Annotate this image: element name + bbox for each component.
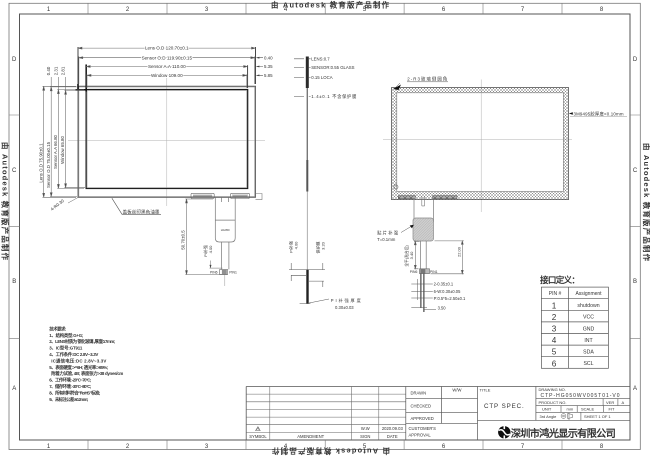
- svg-text:W.W: W.W: [361, 426, 370, 431]
- svg-text:50.70±0.5: 50.70±0.5: [181, 230, 186, 250]
- svg-text:PI补强厚度: PI补强厚度: [331, 297, 362, 304]
- svg-text:A: A: [12, 386, 16, 392]
- svg-text:SCALE: SCALE: [581, 407, 594, 412]
- svg-text:mm: mm: [567, 407, 574, 412]
- svg-text:由 Autodesk 教育版产品制作: 由 Autodesk 教育版产品制作: [271, 447, 390, 456]
- svg-text:Window 65.80: Window 65.80: [60, 136, 65, 164]
- svg-text:D: D: [12, 57, 17, 63]
- svg-text:1: 1: [47, 444, 51, 450]
- svg-text:9、未标注公差:±0.2mm;: 9、未标注公差:±0.2mm;: [49, 396, 89, 403]
- svg-text:2-0.35±0.1: 2-0.35±0.1: [434, 282, 454, 287]
- svg-text:22.00: 22.00: [457, 246, 462, 257]
- svg-text:4、工作条件:DC 2.8V~3.3V: 4、工作条件:DC 2.8V~3.3V: [49, 351, 98, 358]
- svg-text:2.81: 2.81: [61, 66, 66, 75]
- svg-text:Sensor A.A 66.80: Sensor A.A 66.80: [53, 134, 58, 168]
- svg-text:Lens O.D 120.70±0.1: Lens O.D 120.70±0.1: [145, 46, 189, 51]
- svg-text:C: C: [633, 168, 638, 174]
- svg-text:C: C: [12, 168, 17, 174]
- svg-text:Assignment: Assignment: [575, 291, 602, 297]
- svg-text:盖板丝印黑色油墨: 盖板丝印黑色油墨: [123, 208, 160, 215]
- svg-text:3.40: 3.40: [409, 251, 414, 260]
- svg-text:0.15 LOCA: 0.15 LOCA: [311, 75, 332, 80]
- svg-text:3rd Angle: 3rd Angle: [540, 414, 558, 419]
- svg-text:PIN1: PIN1: [229, 270, 237, 274]
- svg-text:贴片补强: 贴片补强: [377, 229, 399, 236]
- svg-text:5.85: 5.85: [264, 73, 273, 78]
- svg-text:3: 3: [205, 444, 209, 450]
- svg-text:由 Autodesk 教育版产品制作: 由 Autodesk 教育版产品制作: [1, 142, 10, 261]
- svg-text:DRAWN: DRAWN: [411, 390, 427, 395]
- svg-text:PIN #: PIN #: [549, 291, 562, 297]
- svg-text:SIGN: SIGN: [360, 434, 370, 439]
- svg-text:SYMBOL: SYMBOL: [249, 434, 267, 439]
- svg-text:CUSTOMER'S: CUSTOMER'S: [409, 426, 437, 431]
- svg-text:B: B: [633, 279, 637, 285]
- svg-text:深圳市鸿光显示有限公司: 深圳市鸿光显示有限公司: [511, 427, 616, 440]
- svg-text:AMENDMENT: AMENDMENT: [297, 434, 324, 439]
- svg-text:5、表面硬度:>=6H; 透光率:>85%;: 5、表面硬度:>=6H; 透光率:>85%;: [49, 364, 109, 371]
- svg-text:SHEET 1 OF 1: SHEET 1 OF 1: [584, 414, 611, 419]
- svg-text:4: 4: [552, 336, 557, 345]
- svg-text:B: B: [12, 279, 16, 285]
- svg-text:7: 7: [521, 7, 525, 13]
- svg-text:LENS:0.7: LENS:0.7: [311, 56, 330, 61]
- svg-text:3: 3: [205, 7, 209, 13]
- svg-text:2: 2: [552, 313, 557, 322]
- svg-text:CTP-HG050WV005T01-V0: CTP-HG050WV005T01-V0: [541, 393, 620, 399]
- svg-text:全平(贴合后): 全平(贴合后): [404, 245, 409, 267]
- svg-text:2020.09.03: 2020.09.03: [382, 426, 404, 431]
- svg-text:附着力试验, 4B; 表面张力>38 dynes/cm: 附着力试验, 4B; 表面张力>38 dynes/cm: [51, 370, 123, 377]
- svg-text:1: 1: [552, 301, 557, 310]
- svg-text:8: 8: [600, 7, 604, 13]
- svg-text:6: 6: [442, 444, 446, 450]
- svg-text:6-W:0.30±0.05: 6-W:0.30±0.05: [434, 289, 461, 294]
- svg-text:2: 2: [126, 7, 130, 13]
- svg-text:1、结构类型:G+G;: 1、结构类型:G+G;: [49, 332, 84, 339]
- svg-text:7: 7: [521, 444, 525, 450]
- svg-text:由 Autodesk 教育版产品制作: 由 Autodesk 教育版产品制作: [271, 0, 390, 9]
- svg-text:0.40: 0.40: [264, 55, 273, 60]
- svg-text:SDA: SDA: [583, 350, 594, 356]
- svg-text:T=0.1mm: T=0.1mm: [377, 237, 396, 242]
- svg-text:1.4±0.1 不含保护膜: 1.4±0.1 不含保护膜: [311, 93, 357, 100]
- svg-text:接口定义：: 接口定义：: [540, 274, 580, 285]
- svg-text:D: D: [633, 57, 638, 63]
- svg-text:8、所有材料符合"RoHS"标准;: 8、所有材料符合"RoHS"标准;: [49, 389, 101, 396]
- svg-text:SENSOR:0.55 GLASS: SENSOR:0.55 GLASS: [311, 65, 354, 70]
- svg-text:8: 8: [600, 444, 604, 450]
- svg-text:2.31: 2.31: [53, 66, 58, 75]
- svg-text:3.50: 3.50: [438, 306, 447, 311]
- svg-text:2、LENS材质为 钢化玻璃 ,厚度0.7mm;: 2、LENS材质为 钢化玻璃 ,厚度0.7mm;: [49, 338, 116, 345]
- svg-text:5.35: 5.35: [264, 64, 273, 69]
- svg-text:HG050: HG050: [221, 228, 230, 232]
- svg-text:P:0.5*5=2.50±0.1: P:0.5*5=2.50±0.1: [434, 296, 466, 301]
- svg-text:3、IC型号:GT911: 3、IC型号:GT911: [49, 345, 83, 352]
- svg-text:0.30±0.03: 0.30±0.03: [335, 305, 354, 310]
- svg-text:0.40: 0.40: [46, 66, 51, 75]
- svg-text:6: 6: [442, 7, 446, 13]
- svg-text:CTP SPEC.: CTP SPEC.: [484, 403, 525, 410]
- svg-text:DRAWING NO.: DRAWING NO.: [539, 387, 566, 392]
- svg-text:Sensor O.D 119.90±0.15: Sensor O.D 119.90±0.15: [142, 55, 193, 60]
- svg-text:Lens O.D 75.90±0.1: Lens O.D 75.90±0.1: [38, 143, 43, 183]
- svg-text:由 Autodesk 教育版产品制作: 由 Autodesk 教育版产品制作: [642, 143, 650, 262]
- svg-text:2: 2: [126, 444, 130, 450]
- svg-text:3: 3: [552, 325, 557, 334]
- svg-text:W/W: W/W: [452, 388, 461, 393]
- svg-text:PIN6: PIN6: [410, 270, 418, 274]
- svg-text:UNIT: UNIT: [542, 407, 552, 412]
- svg-text:GND: GND: [583, 326, 595, 332]
- svg-text:SCL: SCL: [583, 361, 593, 367]
- svg-text:DATE: DATE: [387, 434, 398, 439]
- svg-text:7、储存环境: -30°C~80°C;: 7、储存环境: -30°C~80°C;: [49, 383, 92, 390]
- svg-text:FIT: FIT: [609, 407, 616, 412]
- svg-text:APPROVED: APPROVED: [411, 416, 434, 421]
- svg-text:1: 1: [47, 7, 51, 13]
- svg-text:INT: INT: [584, 338, 593, 344]
- svg-text:4-R0.30: 4-R0.30: [50, 198, 66, 212]
- svg-text:PIN1: PIN1: [430, 270, 438, 274]
- svg-text:IC通信电压:DC 2.8V~3.3V: IC通信电压:DC 2.8V~3.3V: [51, 357, 106, 364]
- svg-text:Sensor O.D 75.00±0.15: Sensor O.D 75.00±0.15: [46, 141, 51, 188]
- svg-text:3.20: 3.20: [321, 241, 326, 250]
- svg-text:PRODUCT NO.: PRODUCT NO.: [539, 400, 567, 405]
- svg-text:技术要求:: 技术要求:: [49, 325, 67, 332]
- svg-text:5: 5: [552, 348, 557, 357]
- svg-text:TITLE: TITLE: [480, 387, 491, 392]
- svg-text:4.00: 4.00: [294, 241, 299, 250]
- svg-text:shutdown: shutdown: [577, 303, 599, 309]
- svg-text:VER: VER: [606, 400, 614, 405]
- svg-text:Window 109.00: Window 109.00: [151, 73, 183, 78]
- svg-text:6: 6: [552, 359, 557, 368]
- svg-text:VCC: VCC: [583, 315, 594, 321]
- svg-text:6、工作环境: -20°C~70°C;: 6、工作环境: -20°C~70°C;: [49, 377, 92, 384]
- svg-text:APPROVAL: APPROVAL: [409, 433, 432, 438]
- svg-text:A: A: [633, 386, 637, 392]
- svg-text:CHECKED: CHECKED: [411, 403, 431, 408]
- svg-text:A: A: [622, 400, 625, 405]
- svg-text:PIN6: PIN6: [210, 270, 218, 274]
- svg-text:4.00: 4.00: [208, 245, 213, 254]
- svg-text:Sensor A.A 110.00: Sensor A.A 110.00: [148, 64, 186, 69]
